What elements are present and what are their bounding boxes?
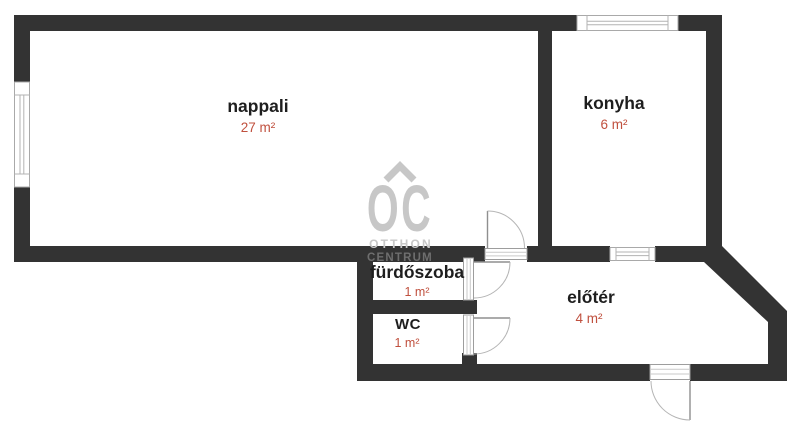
room-area-nappali: 27 m² <box>241 120 276 135</box>
room-area-wc: 1 m² <box>395 336 420 350</box>
wall-top-left-segment <box>14 15 577 31</box>
wall-left-upper-segment <box>14 15 30 82</box>
room-label-furdoszoba: fürdőszoba <box>370 262 465 282</box>
room-area-furdoszoba: 1 m² <box>405 285 430 299</box>
door-threshold <box>650 365 690 380</box>
wall-bath-wc-divider <box>357 300 477 314</box>
window-left-wall-icon <box>15 82 30 187</box>
room-area-konyha: 6 m² <box>601 117 629 132</box>
door-threshold <box>485 249 527 260</box>
door-threshold <box>464 258 474 300</box>
wall-wc-door-jamb <box>462 353 477 381</box>
door-threshold <box>464 315 474 355</box>
watermark-line1: OTTHON <box>369 237 433 251</box>
wall-divider-nappali-konyha <box>538 31 552 248</box>
window-frame <box>577 16 678 31</box>
window-frame <box>15 82 30 187</box>
room-label-nappali: nappali <box>227 96 288 116</box>
room-label-wc: WC <box>395 316 421 333</box>
watermark-logo-text: OC <box>367 171 433 246</box>
wall-bottom-left-segment <box>357 364 650 381</box>
floor-plan-image: OC OTTHON CENTRUM nappali 27 m² konyha 6… <box>0 0 800 432</box>
wall-hall-band-right <box>655 246 706 262</box>
window-konyha-elotér-pass-icon <box>610 248 655 261</box>
room-label-konyha: konyha <box>583 93 645 113</box>
wall-bath-door-jamb <box>462 246 477 259</box>
wall-konyha-right <box>706 15 722 250</box>
wall-hall-band-middle <box>527 246 610 262</box>
window-frame <box>610 248 655 261</box>
watermark: OC OTTHON CENTRUM <box>367 166 433 264</box>
wall-bottom-right-segment <box>690 364 787 381</box>
room-area-eloter: 4 m² <box>576 311 604 326</box>
window-konyha-top-icon <box>577 16 678 31</box>
room-label-eloter: előtér <box>567 287 615 307</box>
floor-plan-svg: OC OTTHON CENTRUM nappali 27 m² konyha 6… <box>0 0 800 432</box>
